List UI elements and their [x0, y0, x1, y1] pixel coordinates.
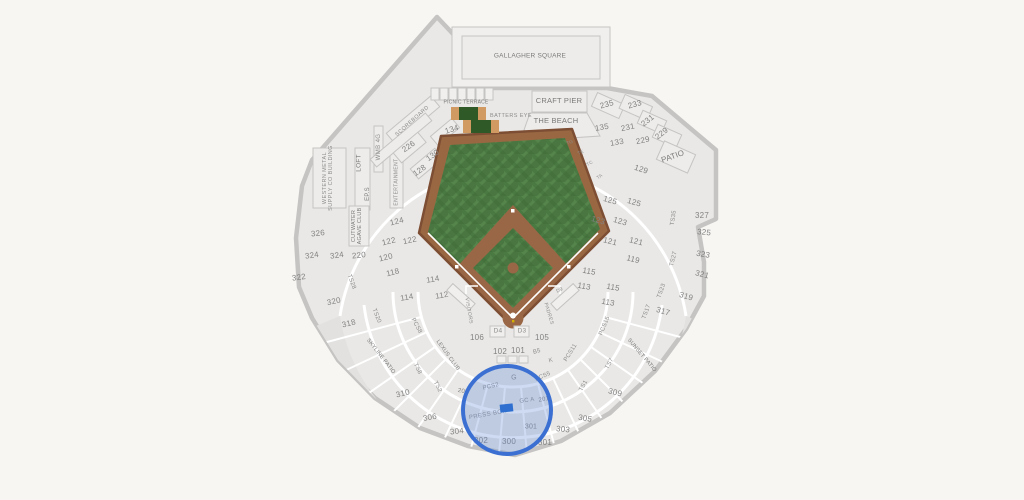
map-label-306[interactable]: 306	[422, 413, 437, 424]
map-label-pcs5[interactable]: PCS5	[534, 371, 552, 383]
map-label-ts2[interactable]: TS2	[431, 380, 442, 393]
map-label-sunset-patio[interactable]: SUNSET PATIO	[625, 338, 656, 374]
map-label-300[interactable]: 300	[502, 438, 516, 446]
map-label-301[interactable]: 301	[538, 439, 552, 447]
map-label-112[interactable]: 112	[435, 291, 450, 302]
map-label-318[interactable]: 318	[341, 318, 357, 330]
map-label-115[interactable]: 115	[582, 267, 597, 278]
map-label-d9[interactable]: D9	[556, 287, 564, 295]
map-label-122[interactable]: 122	[381, 236, 397, 248]
map-label-ts28[interactable]: TS28	[345, 274, 356, 290]
map-label-ts27[interactable]: TS27	[669, 251, 679, 267]
map-label-d4[interactable]: D4	[494, 329, 503, 336]
map-label-ts8[interactable]: TS8	[412, 362, 423, 375]
map-label-125[interactable]: 125	[626, 197, 642, 209]
map-label-301[interactable]: 301	[525, 423, 537, 430]
map-label-123[interactable]: 123	[590, 215, 606, 227]
map-label-105[interactable]: 105	[535, 334, 549, 342]
map-label-326[interactable]: 326	[311, 229, 326, 239]
map-label-125[interactable]: 125	[602, 195, 618, 207]
map-label-b5[interactable]: B5	[532, 348, 541, 356]
map-label-229[interactable]: 229	[654, 126, 670, 141]
map-label-d3[interactable]: D3	[518, 329, 527, 336]
seatmap-canvas: GALLAGHER SQUAREPICNIC TERRACECRAFT PIER…	[0, 0, 1024, 500]
map-label-scoreboard: SCOREBOARD	[395, 105, 431, 138]
map-label-201[interactable]: 201	[538, 396, 550, 404]
map-label-120[interactable]: 120	[378, 252, 394, 264]
map-label-233[interactable]: 233	[627, 99, 643, 111]
map-label-319[interactable]: 319	[678, 291, 694, 303]
map-label-pcs2[interactable]: PCS2	[482, 382, 500, 392]
map-label-320[interactable]: 320	[326, 296, 341, 307]
map-label-304[interactable]: 304	[450, 427, 465, 437]
map-label-231[interactable]: 231	[640, 113, 656, 128]
map-label-114[interactable]: 114	[426, 275, 441, 286]
map-label-309[interactable]: 309	[607, 387, 623, 399]
map-label-padres: PADRES	[542, 302, 554, 325]
map-label-the-beach[interactable]: THE BEACH	[534, 117, 579, 125]
map-label-124[interactable]: 124	[389, 216, 405, 228]
map-label-317[interactable]: 317	[655, 306, 671, 318]
map-label-128[interactable]: 128	[412, 164, 428, 179]
map-label-113[interactable]: 113	[577, 282, 592, 293]
map-label-ta[interactable]: TA	[596, 173, 603, 180]
map-label-pcs8[interactable]: PCS8	[409, 317, 422, 335]
map-label-135[interactable]: 135	[594, 123, 609, 134]
map-label-310[interactable]: 310	[395, 388, 411, 400]
map-label-picnic-terrace[interactable]: PICNIC TERRACE	[444, 100, 489, 105]
map-label-324[interactable]: 324	[305, 251, 320, 261]
map-label-press-box: PRESS BOX	[469, 409, 508, 422]
map-label-pcs11[interactable]: PCS11	[563, 343, 579, 363]
map-label-ts17[interactable]: TS17	[641, 304, 652, 320]
map-label-325[interactable]: 325	[697, 228, 712, 238]
map-label-322[interactable]: 322	[292, 273, 307, 283]
map-label-129[interactable]: 129	[633, 164, 649, 176]
map-label-gc-a[interactable]: GC A	[519, 397, 535, 405]
map-label-323[interactable]: 323	[695, 250, 710, 261]
map-label-121[interactable]: 121	[602, 236, 618, 248]
map-label-ts23[interactable]: TS23	[656, 283, 667, 299]
map-label-k[interactable]: K	[548, 357, 554, 364]
map-label-craft-pier[interactable]: CRAFT PIER	[536, 97, 582, 105]
map-label-loft[interactable]: LOFT	[357, 154, 364, 171]
map-label-118[interactable]: 118	[386, 267, 401, 278]
map-label-303[interactable]: 303	[556, 425, 571, 435]
map-label-115[interactable]: 115	[606, 283, 621, 294]
map-label-te[interactable]: TE	[577, 150, 585, 157]
map-label-114[interactable]: 114	[400, 293, 415, 304]
label-layer: GALLAGHER SQUAREPICNIC TERRACECRAFT PIER…	[0, 0, 1024, 500]
map-label-wmb-4g: WMB 4G	[376, 134, 382, 161]
map-label-121[interactable]: 121	[628, 236, 644, 248]
map-label-220[interactable]: 220	[352, 251, 367, 261]
map-label-305[interactable]: 305	[577, 414, 592, 425]
map-label-ep-s[interactable]: EP.S	[365, 187, 371, 201]
map-label-119[interactable]: 119	[626, 254, 641, 265]
map-label-134[interactable]: 134	[444, 124, 460, 136]
map-label-302[interactable]: 302	[474, 437, 488, 445]
map-label-lexus-club[interactable]: LEXUS CLUB	[434, 340, 460, 373]
map-label-ts20[interactable]: TS20	[370, 308, 382, 324]
map-label-ts1[interactable]: TS1	[578, 379, 589, 392]
map-label-327[interactable]: 327	[695, 212, 709, 220]
map-label-cutwater-agave-club[interactable]: CUTWATER AGAVE CLUB	[352, 208, 364, 245]
map-label-102[interactable]: 102	[493, 348, 507, 356]
map-label-229[interactable]: 229	[635, 135, 650, 146]
map-label-patio[interactable]: PATIO	[660, 149, 685, 165]
map-label-entertainment: ENTERTAINMENT	[394, 158, 399, 205]
map-label-122[interactable]: 122	[402, 235, 417, 246]
map-label-tc[interactable]: TC	[586, 160, 594, 167]
map-label-visitors: VISITORS	[463, 298, 473, 325]
map-label-101[interactable]: 101	[511, 347, 525, 355]
map-label-133[interactable]: 133	[609, 138, 624, 149]
map-label-batters-eye: BATTERS EYE	[490, 114, 532, 120]
map-label-231[interactable]: 231	[620, 122, 635, 133]
map-label-202[interactable]: 202	[457, 388, 469, 396]
map-label-ts7[interactable]: TS7	[604, 357, 615, 370]
map-label-123[interactable]: 123	[612, 216, 628, 228]
map-label-226[interactable]: 226	[401, 140, 417, 155]
map-label-gallagher-square[interactable]: GALLAGHER SQUARE	[494, 54, 566, 61]
map-label-106[interactable]: 106	[470, 334, 484, 342]
map-label-pcs15[interactable]: PCS15	[598, 316, 611, 337]
map-label-113[interactable]: 113	[601, 298, 616, 309]
map-label-ts35[interactable]: TS35	[670, 210, 678, 226]
map-label-skyline-patio[interactable]: SKYLINE PATIO	[364, 338, 395, 375]
map-label-235[interactable]: 235	[599, 99, 615, 111]
map-label-g[interactable]: G	[511, 374, 517, 381]
map-label-tg[interactable]: TG	[566, 140, 574, 147]
map-label-321[interactable]: 321	[694, 269, 710, 281]
map-label-324[interactable]: 324	[330, 251, 345, 261]
map-label-western-metal-supply-co-building: WESTERN METAL SUPPLY CO BUILDING	[323, 145, 335, 211]
map-label-130[interactable]: 130	[425, 149, 441, 164]
